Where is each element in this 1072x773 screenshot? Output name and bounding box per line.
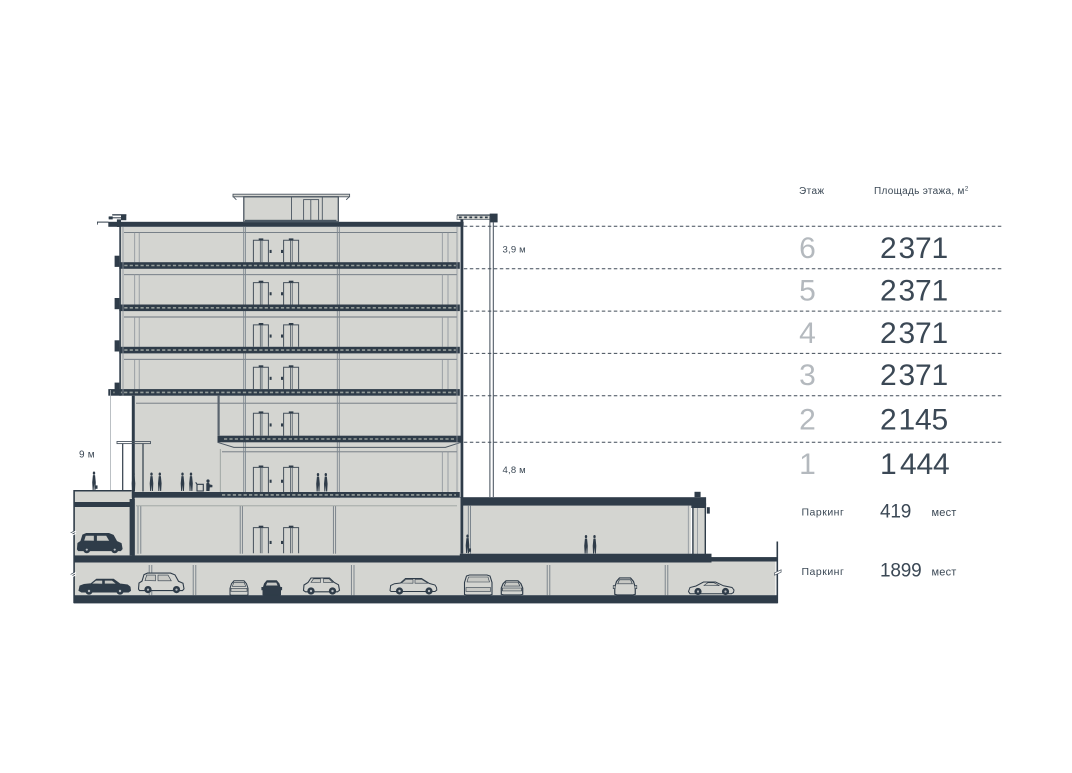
svg-text:1444: 1444 [880, 448, 949, 481]
svg-text:Этаж: Этаж [799, 186, 825, 197]
svg-text:4: 4 [799, 317, 816, 350]
svg-text:3: 3 [799, 359, 816, 392]
svg-text:2371: 2371 [880, 232, 948, 265]
svg-text:2371: 2371 [880, 359, 948, 392]
svg-text:2371: 2371 [880, 275, 948, 308]
svg-text:4,8 м: 4,8 м [503, 465, 526, 476]
svg-text:2145: 2145 [880, 404, 948, 437]
svg-text:Паркинг: Паркинг [802, 507, 845, 519]
svg-text:419: 419 [880, 502, 911, 523]
svg-text:1: 1 [799, 448, 816, 481]
svg-text:Площадь этажа, м2: Площадь этажа, м2 [874, 186, 969, 198]
svg-text:мест: мест [932, 567, 957, 579]
svg-text:2: 2 [799, 404, 816, 437]
svg-text:5: 5 [799, 275, 816, 308]
svg-text:мест: мест [932, 507, 957, 519]
svg-text:1899: 1899 [880, 561, 921, 582]
svg-text:9 м: 9 м [79, 450, 95, 461]
svg-text:3,9 м: 3,9 м [503, 245, 526, 256]
svg-text:6: 6 [799, 232, 816, 265]
svg-text:Паркинг: Паркинг [802, 566, 845, 578]
svg-text:2371: 2371 [880, 317, 948, 350]
